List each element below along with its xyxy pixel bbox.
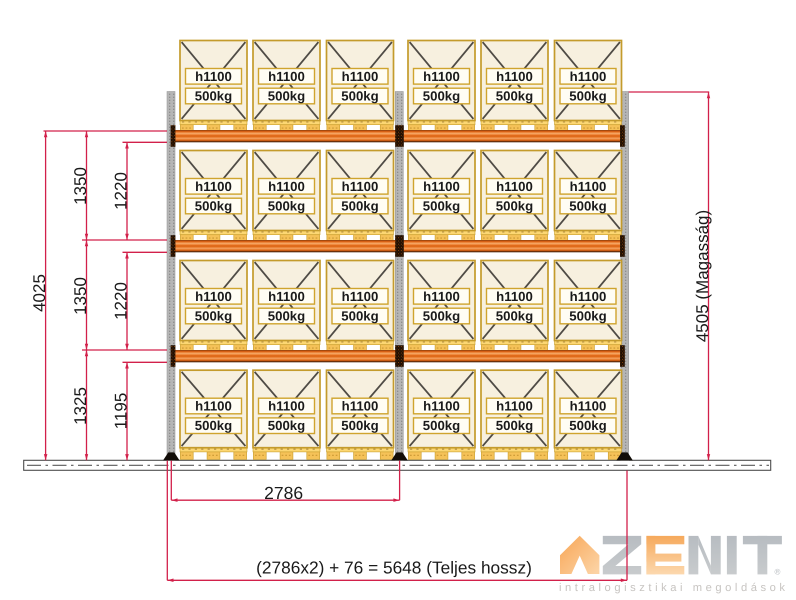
svg-text:2786: 2786: [264, 483, 303, 503]
svg-text:500kg: 500kg: [341, 418, 378, 433]
svg-text:500kg: 500kg: [341, 309, 378, 324]
svg-text:500kg: 500kg: [569, 199, 606, 214]
svg-text:h1100: h1100: [195, 289, 232, 304]
svg-text:500kg: 500kg: [569, 89, 606, 104]
svg-text:h1100: h1100: [342, 179, 379, 194]
svg-text:500kg: 500kg: [569, 309, 606, 324]
svg-text:h1100: h1100: [195, 69, 232, 84]
svg-text:h1100: h1100: [195, 179, 232, 194]
svg-text:500kg: 500kg: [195, 309, 232, 324]
svg-text:500kg: 500kg: [423, 309, 460, 324]
svg-text:500kg: 500kg: [195, 199, 232, 214]
svg-text:500kg: 500kg: [496, 199, 533, 214]
svg-text:500kg: 500kg: [195, 89, 232, 104]
svg-text:h1100: h1100: [423, 289, 460, 304]
svg-text:500kg: 500kg: [341, 199, 378, 214]
svg-text:h1100: h1100: [195, 399, 232, 414]
svg-text:®: ®: [775, 568, 781, 577]
svg-text:4025: 4025: [30, 274, 49, 312]
svg-text:h1100: h1100: [423, 179, 460, 194]
svg-text:h1100: h1100: [570, 289, 607, 304]
svg-text:500kg: 500kg: [496, 89, 533, 104]
svg-text:500kg: 500kg: [341, 89, 378, 104]
svg-text:500kg: 500kg: [496, 418, 533, 433]
svg-text:h1100: h1100: [268, 69, 305, 84]
svg-text:500kg: 500kg: [423, 199, 460, 214]
svg-text:h1100: h1100: [496, 289, 533, 304]
svg-text:h1100: h1100: [423, 399, 460, 414]
svg-text:500kg: 500kg: [195, 418, 232, 433]
svg-text:h1100: h1100: [496, 69, 533, 84]
svg-text:500kg: 500kg: [268, 199, 305, 214]
svg-text:1325: 1325: [71, 387, 90, 425]
svg-text:h1100: h1100: [496, 179, 533, 194]
svg-text:h1100: h1100: [342, 69, 379, 84]
svg-text:h1100: h1100: [570, 179, 607, 194]
svg-text:500kg: 500kg: [569, 418, 606, 433]
svg-text:h1100: h1100: [570, 69, 607, 84]
svg-text:500kg: 500kg: [496, 309, 533, 324]
svg-text:h1100: h1100: [342, 399, 379, 414]
svg-text:h1100: h1100: [268, 179, 305, 194]
svg-text:500kg: 500kg: [423, 89, 460, 104]
svg-text:h1100: h1100: [496, 399, 533, 414]
svg-text:1220: 1220: [112, 282, 131, 320]
svg-text:h1100: h1100: [268, 399, 305, 414]
svg-text:500kg: 500kg: [423, 418, 460, 433]
svg-text:4505 (Magasság): 4505 (Magasság): [693, 210, 712, 342]
svg-text:h1100: h1100: [342, 289, 379, 304]
svg-text:h1100: h1100: [423, 69, 460, 84]
svg-text:h1100: h1100: [570, 399, 607, 414]
svg-text:(2786x2) + 76 = 5648 (Teljes h: (2786x2) + 76 = 5648 (Teljes hossz): [256, 558, 532, 578]
svg-text:h1100: h1100: [268, 289, 305, 304]
svg-text:1350: 1350: [71, 167, 90, 205]
svg-text:500kg: 500kg: [268, 89, 305, 104]
svg-text:1220: 1220: [112, 172, 131, 210]
svg-text:500kg: 500kg: [268, 418, 305, 433]
svg-text:500kg: 500kg: [268, 309, 305, 324]
svg-text:1350: 1350: [71, 277, 90, 315]
svg-text:1195: 1195: [112, 393, 131, 430]
svg-text:intralogisztikai megoldások: intralogisztikai megoldások: [559, 582, 789, 594]
